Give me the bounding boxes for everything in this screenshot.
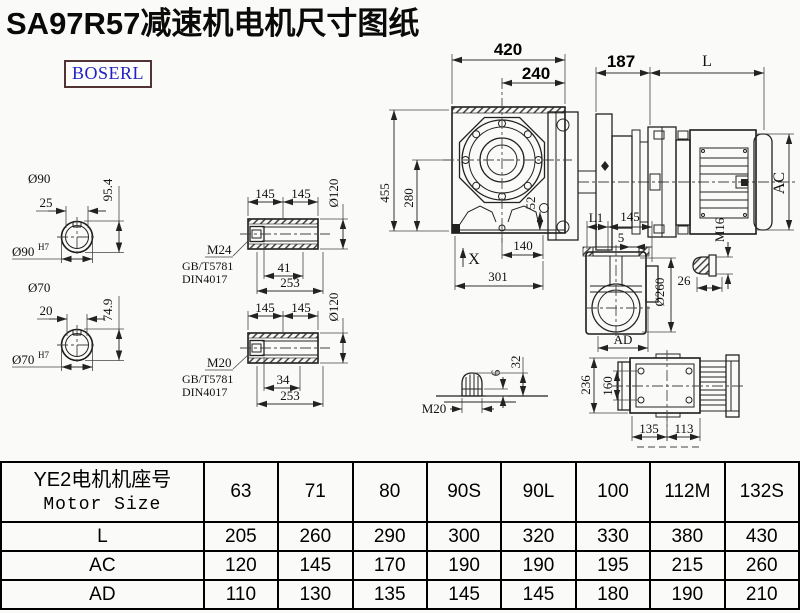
dim-95-4: 95.4 [100, 178, 115, 201]
motor-view: 187 L AC [578, 52, 797, 250]
dim-dia260: Ø260 [652, 278, 667, 307]
dim-5: 5 [618, 230, 625, 245]
dim-m16: M16 [712, 217, 727, 242]
l-90s: 300 [427, 522, 501, 551]
shaft-section-90: Ø90 25 95.4 Ø90 H7 [12, 171, 124, 263]
l-80: 290 [353, 522, 427, 551]
dim-187: 187 [607, 52, 635, 71]
header-motor-size-en: Motor Size [2, 493, 203, 517]
ac-132s: 260 [725, 551, 799, 580]
row-label-ad: AD [1, 580, 204, 609]
table-row-ac: AC 120 145 170 190 190 195 215 260 [1, 551, 799, 580]
dim-253-2: 253 [280, 388, 300, 403]
table-header-row: YE2电机机座号 Motor Size 63 71 80 90S 90L 100… [1, 462, 799, 522]
table-row-ad: AD 110 130 135 145 145 180 190 210 [1, 580, 799, 609]
dim-253-1: 253 [280, 275, 300, 290]
hollow-shaft-2: 145 145 Ø120 M20 GB/T5781 DIN4017 34 253 [182, 293, 348, 407]
dim-20: 20 [40, 303, 53, 318]
label-gb5781-1: GB/T5781 [182, 259, 233, 273]
plug-m16: M16 26 [678, 217, 734, 292]
front-view: 420 240 455 280 52 140 301 X [377, 40, 596, 290]
label-dia90h7: Ø90 [12, 244, 34, 259]
dim-145-side: 145 [620, 209, 640, 224]
row-label-ac: AC [1, 551, 204, 580]
label-m24: M24 [207, 242, 232, 257]
size-90s: 90S [427, 462, 501, 522]
label-dia90h7-sup: H7 [38, 242, 49, 252]
dim-25: 25 [40, 195, 53, 210]
ad-63: 110 [204, 580, 278, 609]
ac-112m: 215 [650, 551, 724, 580]
dim-x: X [468, 251, 480, 268]
size-112m: 112M [650, 462, 724, 522]
label-m20: M20 [207, 355, 232, 370]
dim-113: 113 [674, 421, 693, 436]
table-row-l: L 205 260 290 300 320 330 380 430 [1, 522, 799, 551]
motor-size-table: YE2电机机座号 Motor Size 63 71 80 90S 90L 100… [0, 461, 800, 610]
header-motor-size: YE2电机机座号 Motor Size [1, 462, 204, 522]
dim-l: L [702, 53, 712, 70]
dim-140: 140 [513, 238, 533, 253]
size-63: 63 [204, 462, 278, 522]
ac-100: 195 [576, 551, 650, 580]
dim-34: 34 [277, 372, 291, 387]
label-dia70h7-sup: H7 [38, 350, 49, 360]
dim-240: 240 [522, 64, 550, 83]
ad-71: 130 [278, 580, 352, 609]
l-71: 260 [278, 522, 352, 551]
ad-80: 135 [353, 580, 427, 609]
label-dia70h7: Ø70 [12, 352, 34, 367]
ad-100: 180 [576, 580, 650, 609]
dim-32: 32 [508, 356, 523, 369]
dim-160: 160 [600, 376, 615, 396]
ad-132s: 210 [725, 580, 799, 609]
size-90l: 90L [501, 462, 575, 522]
ac-71: 145 [278, 551, 352, 580]
label-dia70: Ø70 [28, 280, 50, 295]
plug-m20: M20 6 32 [422, 356, 548, 417]
header-motor-size-cn: YE2电机机座号 [2, 467, 203, 493]
dim-236: 236 [578, 375, 593, 395]
dim-145-c: 145 [255, 300, 275, 315]
label-din4017-2: DIN4017 [182, 385, 227, 399]
size-80: 80 [353, 462, 427, 522]
ac-63: 120 [204, 551, 278, 580]
label-dia90: Ø90 [28, 171, 50, 186]
dim-301: 301 [488, 269, 508, 284]
dim-ad: AD [614, 332, 633, 347]
technical-drawing: 420 240 455 280 52 140 301 X [0, 0, 800, 461]
motor-size-table-wrap: YE2电机机座号 Motor Size 63 71 80 90S 90L 100… [0, 461, 800, 610]
ac-90l: 190 [501, 551, 575, 580]
l-132s: 430 [725, 522, 799, 551]
dim-74-9: 74.9 [100, 299, 115, 322]
dim-420: 420 [494, 40, 522, 59]
dim-m20: M20 [422, 401, 447, 416]
label-din4017-1: DIN4017 [182, 272, 227, 286]
dim-145-b: 145 [291, 186, 311, 201]
size-71: 71 [278, 462, 352, 522]
dim-52: 52 [523, 197, 538, 210]
top-view: 236 160 135 113 [578, 350, 746, 447]
dim-ac: AC [771, 172, 788, 194]
row-label-l: L [1, 522, 204, 551]
dim-41: 41 [278, 260, 291, 275]
l-112m: 380 [650, 522, 724, 551]
dim-145-a: 145 [255, 186, 275, 201]
hollow-shaft-1: 145 145 Ø120 M24 GB/T5781 DIN4017 41 253 [182, 179, 348, 294]
size-100: 100 [576, 462, 650, 522]
label-gb5781-2: GB/T5781 [182, 372, 233, 386]
ad-90l: 145 [501, 580, 575, 609]
ad-90s: 145 [427, 580, 501, 609]
l-63: 205 [204, 522, 278, 551]
dim-dia120-1: Ø120 [326, 179, 341, 208]
ad-112m: 190 [650, 580, 724, 609]
dim-145-d: 145 [291, 300, 311, 315]
size-132s: 132S [725, 462, 799, 522]
drawing-page: SA97R57减速机电机尺寸图纸 BOSERL [0, 0, 800, 613]
shaft-section-70: Ø70 20 74.9 Ø70 H7 [12, 280, 124, 371]
dim-135: 135 [639, 421, 659, 436]
l-90l: 320 [501, 522, 575, 551]
dim-280: 280 [401, 188, 416, 208]
l-100: 330 [576, 522, 650, 551]
dim-26: 26 [678, 273, 692, 288]
dim-l1: L1 [589, 210, 603, 225]
dim-455: 455 [377, 183, 392, 203]
ac-80: 170 [353, 551, 427, 580]
ac-90s: 190 [427, 551, 501, 580]
dim-dia120-2: Ø120 [326, 293, 341, 322]
